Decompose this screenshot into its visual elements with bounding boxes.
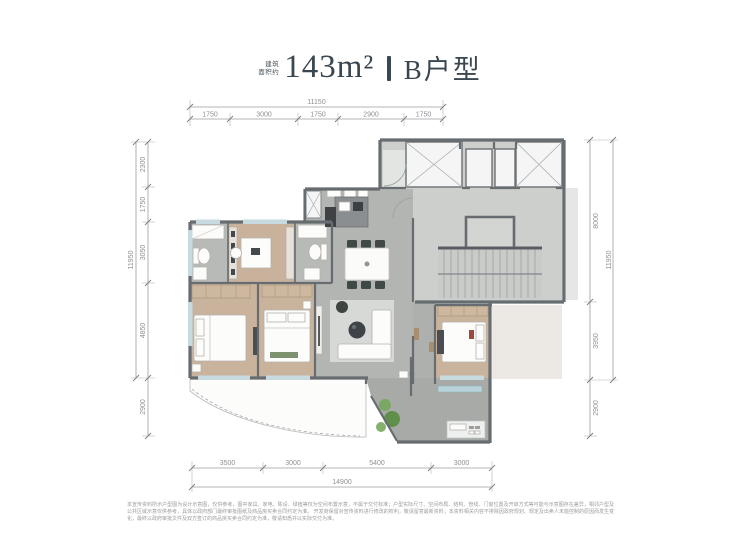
dim-label: 3000 [285, 460, 301, 467]
dresser [437, 330, 444, 354]
dim-label: 1750 [140, 197, 147, 213]
dim-label: 5400 [369, 460, 385, 467]
disclaimer: 本宣传资料所示户型图为设计示意图，仅供参考，图中家具、家电、陈设、绿植等仅为空间… [127, 502, 614, 523]
dim-label: 2900 [140, 399, 147, 415]
core-elevators [406, 142, 562, 187]
shaft-room [495, 149, 515, 187]
balcony [190, 378, 366, 437]
dim-label: 11950 [128, 250, 135, 269]
coffee-table [349, 322, 366, 339]
plant [376, 422, 386, 432]
furniture-bedroom-c [437, 306, 488, 362]
dim-label: 2900 [593, 400, 600, 416]
red-cushion [469, 330, 474, 339]
furniture-bedroom-b [262, 285, 312, 362]
sofa [338, 344, 391, 359]
wardrobe [438, 306, 488, 316]
shaft-room [466, 149, 492, 187]
dim-label: 4850 [140, 323, 147, 339]
dim-label: 2300 [140, 157, 147, 173]
plant [379, 399, 391, 411]
neighbor-unit-hint [492, 305, 562, 379]
dim-label: 3000 [454, 460, 470, 467]
dim-label: 3500 [220, 460, 236, 467]
dim-label: 11150 [307, 99, 326, 106]
plant [336, 301, 348, 313]
dimension-chain-left: 2300 1750 3050 4850 2900 11950 [128, 139, 155, 439]
dimension-chain-right: 8000 3950 2900 11950 [584, 137, 618, 439]
dim-label: 1750 [310, 112, 326, 119]
neighbor-corridor-hint [566, 188, 578, 300]
kitchen-duct [306, 191, 321, 218]
dim-label: 3050 [140, 245, 147, 261]
dim-label: 14900 [332, 479, 352, 486]
floorplan-page: 建筑 面积约 143m² B户型 [0, 0, 740, 554]
dim-label: 1750 [416, 112, 432, 119]
furniture-dining [345, 240, 389, 289]
dim-label: 1750 [202, 112, 218, 119]
dim-label: 3950 [593, 333, 600, 349]
window-seat [438, 386, 482, 392]
dim-label: 2900 [363, 112, 379, 119]
dim-label: 11950 [606, 250, 613, 269]
floor-plan: 11150 1750 3000 1750 2900 1750 3500 3000… [0, 0, 740, 554]
bench [270, 352, 298, 358]
shoe-bench [450, 424, 466, 430]
dim-label: 8000 [593, 213, 600, 229]
dimension-chain-bottom: 3500 3000 5400 3000 14900 [189, 460, 495, 492]
dimension-chain-top: 11150 1750 3000 1750 2900 1750 [187, 99, 446, 126]
wardrobe [262, 285, 312, 297]
dim-label: 3000 [256, 112, 272, 119]
